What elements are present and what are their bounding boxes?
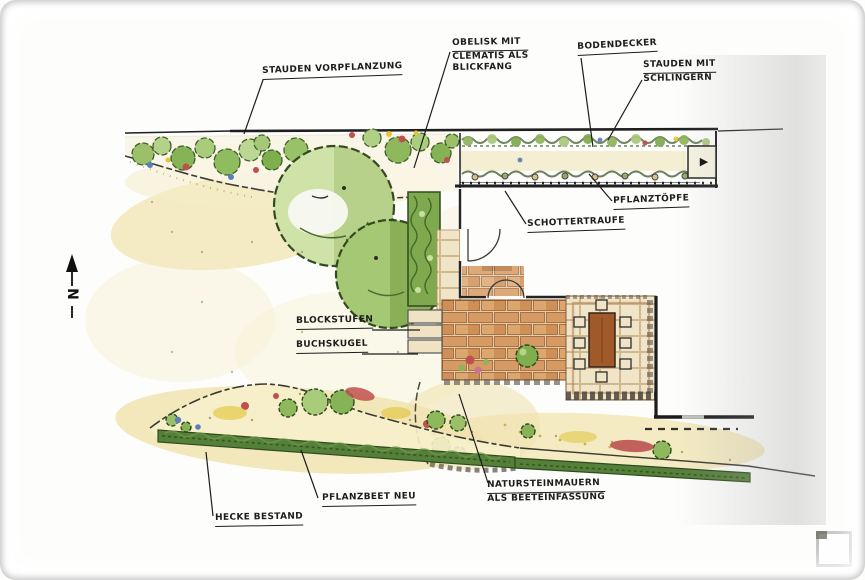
label-buchskugel: BUCHSKUGEL — [296, 339, 368, 354]
seating-terrace — [566, 296, 656, 400]
label-pflanztoepfe: PFLANZTÖPFE — [613, 193, 689, 209]
gate-arrow-icon: ▶ — [694, 152, 714, 172]
label-stauden-mit-schlingern: STAUDEN MIT SCHLINGERN — [643, 59, 716, 85]
label-hecke-bestand: HECKE BESTAND — [215, 511, 303, 526]
block-steps — [408, 310, 442, 353]
buxus-ball — [516, 345, 538, 367]
garden-plan-scan: STAUDEN VORPFLANZUNG OBELISK MIT CLEMATI… — [0, 0, 865, 580]
image-placeholder-icon — [816, 531, 852, 567]
label-blockstufen: BLOCKSTUFEN — [296, 315, 373, 330]
side-planting-bed — [408, 192, 440, 306]
image-placeholder-icon-dot — [816, 531, 827, 539]
north-letter: N — [62, 284, 82, 304]
property-boundary-lines — [645, 296, 754, 429]
label-obelisk: OBELISK MIT CLEMATIS ALS BLICKFANG — [452, 37, 529, 75]
garden-plan-drawing — [0, 0, 865, 580]
top-right-planting-strip — [460, 131, 716, 188]
label-pflanzbeet-neu: PFLANZBEET NEU — [322, 491, 416, 506]
label-natursteinmauern: NATURSTEINMAUERN ALS BEETEINFASSUNG — [487, 478, 605, 505]
